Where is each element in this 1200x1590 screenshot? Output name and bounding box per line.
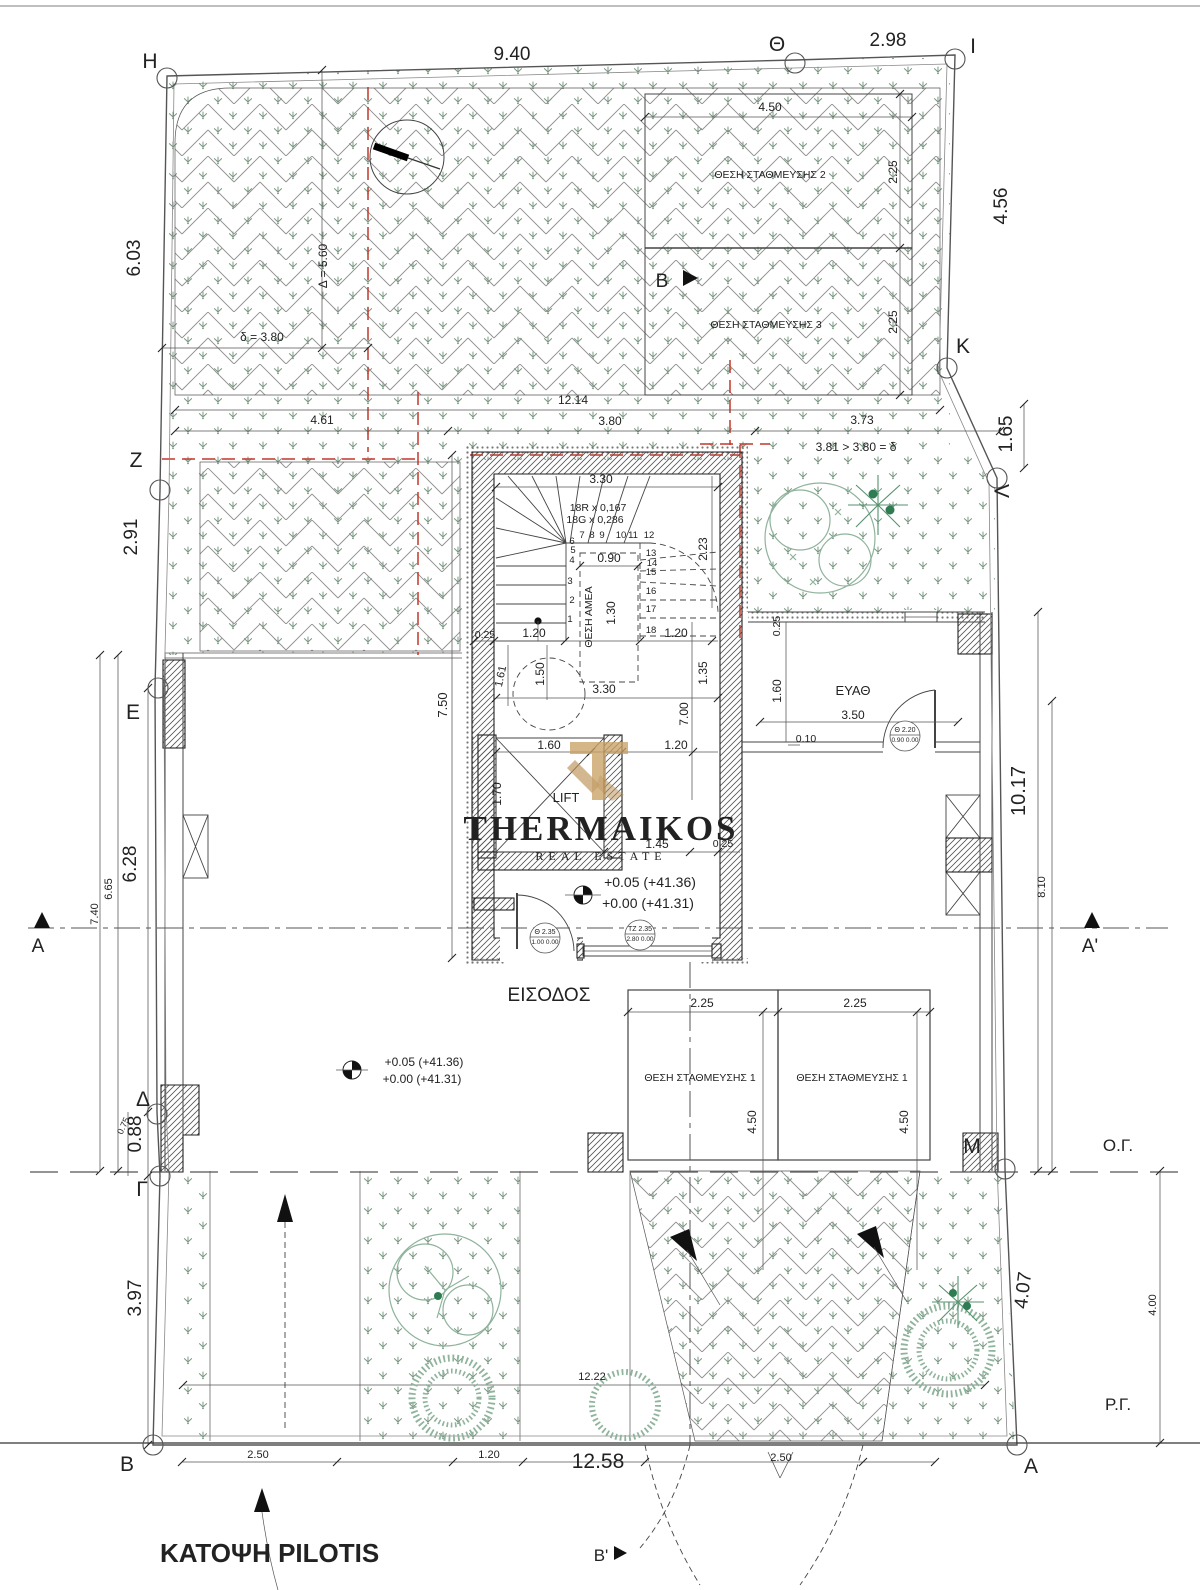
dim-label: 0.90 [597,551,621,565]
dim-label: 0.10 [796,733,817,745]
marker-I: I [970,35,976,58]
parking-1a-label: ΘΕΣΗ ΣΤΑΘΜΕΥΣΗΣ 1 [644,1072,755,1084]
entrance-label: ΕΙΣΟΔΟΣ [508,985,591,1006]
utility-room-label: ΕΥΑΘ [836,683,871,698]
dim-label: 3.80 [598,414,622,428]
dim-label: 1.60 [537,738,561,752]
dim-label: 4.50 [758,100,782,114]
dim-label: 6.28 [120,846,141,883]
door-tag-1b: 1.00 0.00 [531,939,558,946]
door-tag-3: Θ 2.20 [894,727,915,734]
dim-label: 12.58 [572,1450,625,1473]
drawing-title: ΚΑΤΟΨΗ PILOTIS [160,1538,379,1568]
dim-label: 4.56 [991,188,1012,225]
level-lower-2: +0.00 (+41.31) [383,1072,462,1086]
watermark-name: THERMAIKOS [463,809,738,848]
dim-label: 2 [569,595,574,606]
dim-label: 7.50 [435,692,450,717]
level-lower: +0.00 (+41.31) [602,895,694,911]
dim-label: δ = 3.80 [240,330,284,344]
door-tag-2: ΤΖ 2.35 [628,926,652,933]
marker-M: M [963,1135,981,1158]
parking-3-label: ΘΕΣΗ ΣΤΑΘΜΕΥΣΗΣ 3 [710,319,821,331]
dim-label: 9.40 [494,44,531,65]
dim-label: 6.65 [103,878,115,899]
dim-label: 16 [646,586,657,597]
marker-Z: Z [130,449,143,472]
marker-A: A [1024,1455,1038,1478]
dim-label: 7 [579,530,584,541]
parking-1b-label: ΘΕΣΗ ΣΤΑΘΜΕΥΣΗΣ 1 [796,1072,907,1084]
marker-K: K [956,335,970,358]
section-label-B2: Β' [594,1546,609,1565]
pilotis-floor [183,653,980,1171]
lift-label: LIFT [553,790,580,805]
section-label-A: A [32,936,45,957]
dim-label: 0.25 [475,629,496,641]
dim-label: 3 [567,576,572,587]
street-line-label: Ρ.Γ. [1105,1395,1131,1414]
section-label-A2: A' [1082,936,1098,957]
dim-label: 6.03 [124,240,145,277]
door-tag-2b: 2.80 0.00 [626,936,653,943]
marker-theta: Θ [769,33,785,56]
door-tag-3b: 0.90 0.00 [891,737,918,744]
dim-label: 1.65 [996,416,1017,453]
dim-label: 1.20 [522,626,546,640]
parking-2-label: ΘΕΣΗ ΣΤΑΘΜΕΥΣΗΣ 2 [714,169,825,181]
level-upper: +0.05 (+41.36) [604,874,696,890]
dim-label: 4.07 [1011,1271,1036,1310]
floor-plan-page: HΘIKΛZEΔΓBMAAA'BΒ'9.402.986.034.561.652.… [0,0,1200,1590]
dim-label: 4.61 [310,413,334,427]
disabled-spot-label: ΘΕΣΗ ΑΜΕΑ [583,586,595,647]
section-label-B: B [656,271,669,292]
dim-label: 18 [646,625,657,636]
dim-label: 12.22 [578,1371,606,1383]
dim-label: 10.17 [1008,766,1030,816]
dim-label: 1 [567,614,572,625]
dim-label: 10 [616,530,627,541]
dim-label: 12.14 [558,393,588,407]
dim-label: 2.91 [121,519,142,556]
marker-lambda: Λ [991,484,1014,498]
dim-label: 9 [599,530,604,541]
dim-label: 2.25 [843,996,867,1010]
dim-label: 1.70 [490,782,504,806]
dim-label: 1.20 [478,1449,499,1461]
dim-label: 6 [569,536,574,547]
watermark-tagline: REAL ESTATE [535,849,666,863]
stair-note-risers: 18R x 0,167 [570,502,627,514]
building-line-label: Ο.Γ. [1103,1136,1133,1155]
dim-label: 1.30 [604,601,618,625]
dim-label: 15 [646,567,657,578]
dim-label: 2.98 [870,30,907,51]
dim-label: 7.00 [677,702,691,726]
level-upper-2: +0.05 (+41.36) [385,1055,464,1069]
marker-H: H [142,50,157,73]
marker-delta: Δ [136,1088,150,1111]
dim-label: 3.50 [841,708,865,722]
dim-label: 2.23 [696,537,710,561]
dim-label: 4.50 [745,1110,759,1134]
dim-label: 2.50 [770,1452,791,1464]
dim-label: 1.60 [770,679,784,703]
dim-label: 4.50 [897,1110,911,1134]
dim-label: 3.97 [125,1280,146,1317]
dim-label: 0.25 [771,616,783,637]
dim-label: 2.25 [690,996,714,1010]
dim-label: 4 [569,555,574,566]
dim-label: 3.30 [589,472,613,486]
dim-label: 1.50 [533,662,547,686]
dim-label: 2.50 [247,1449,268,1461]
dim-label: 8.10 [1036,876,1048,897]
dim-label: 11 [628,530,638,541]
floor-plan-drawing: HΘIKΛZEΔΓBMAAA'BΒ'9.402.986.034.561.652.… [0,0,1200,1590]
dim-label: 3.73 [850,413,874,427]
dim-label: Δ = 5.60 [316,243,330,288]
dim-label: 1.35 [696,661,710,685]
dim-label: 8 [589,530,594,541]
dim-label: 3.30 [592,682,616,696]
dim-label: 1.20 [664,626,688,640]
marker-gamma: Γ [136,1178,148,1201]
marker-E: E [126,701,140,724]
dim-label: 7.40 [89,903,101,924]
dim-label: 12 [644,530,655,541]
dim-label: 17 [646,604,657,615]
dim-label: 3.81 > 3.80 = δ [816,440,897,454]
dim-label: 4.00 [1147,1294,1159,1315]
dim-label: 1.20 [664,738,688,752]
marker-B: B [120,1453,134,1476]
door-tag-1: Θ 2.35 [534,929,555,936]
dim-label: 2.25 [886,160,900,184]
dim-label: 2.25 [886,310,900,334]
stair-note-goings: 18G x 0,286 [566,514,623,526]
